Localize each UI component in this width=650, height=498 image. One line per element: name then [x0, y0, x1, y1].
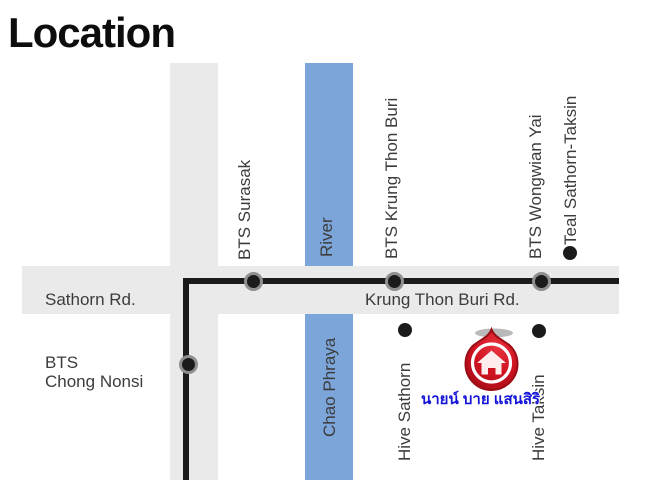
project-name-thai: นายน์ บาย แสนสิริ: [421, 387, 540, 411]
hive-sathorn-label: Hive Sathorn: [396, 363, 414, 461]
hive-sathorn-dot: [398, 323, 412, 337]
teal-sathorn-taksin-dot: [563, 246, 577, 260]
sathorn-rd-label: Sathorn Rd.: [45, 290, 136, 309]
bts-krung-thon-buri-label: BTS Krung Thon Buri: [383, 98, 401, 259]
chong-nonsi-station-dot: [179, 355, 198, 374]
wongwian-yai-station-dot: [532, 272, 551, 291]
bts-chong-nonsi-line1: BTS: [45, 353, 143, 372]
surasak-station-dot: [244, 272, 263, 291]
hive-taksin-dot: [532, 324, 546, 338]
bts-line-vertical: [183, 278, 189, 480]
chao-phraya-label: Chao Phraya: [321, 338, 339, 437]
krung-thon-buri-station-dot: [385, 272, 404, 291]
bts-surasak-label: BTS Surasak: [236, 160, 254, 260]
location-map: Location BTS Surasak River BTS Krung Tho…: [0, 0, 650, 498]
krung-thon-buri-rd-label: Krung Thon Buri Rd.: [365, 290, 520, 309]
bts-chong-nonsi-label: BTS Chong Nonsi: [45, 353, 143, 391]
page-title: Location: [8, 10, 175, 56]
location-pin: [456, 323, 528, 393]
bts-chong-nonsi-line2: Chong Nonsi: [45, 372, 143, 391]
teal-sathorn-taksin-label: Teal Sathorn-Taksin: [562, 96, 580, 245]
bts-wongwian-yai-label: BTS Wongwian Yai: [527, 114, 545, 259]
river-label: River: [318, 217, 336, 257]
